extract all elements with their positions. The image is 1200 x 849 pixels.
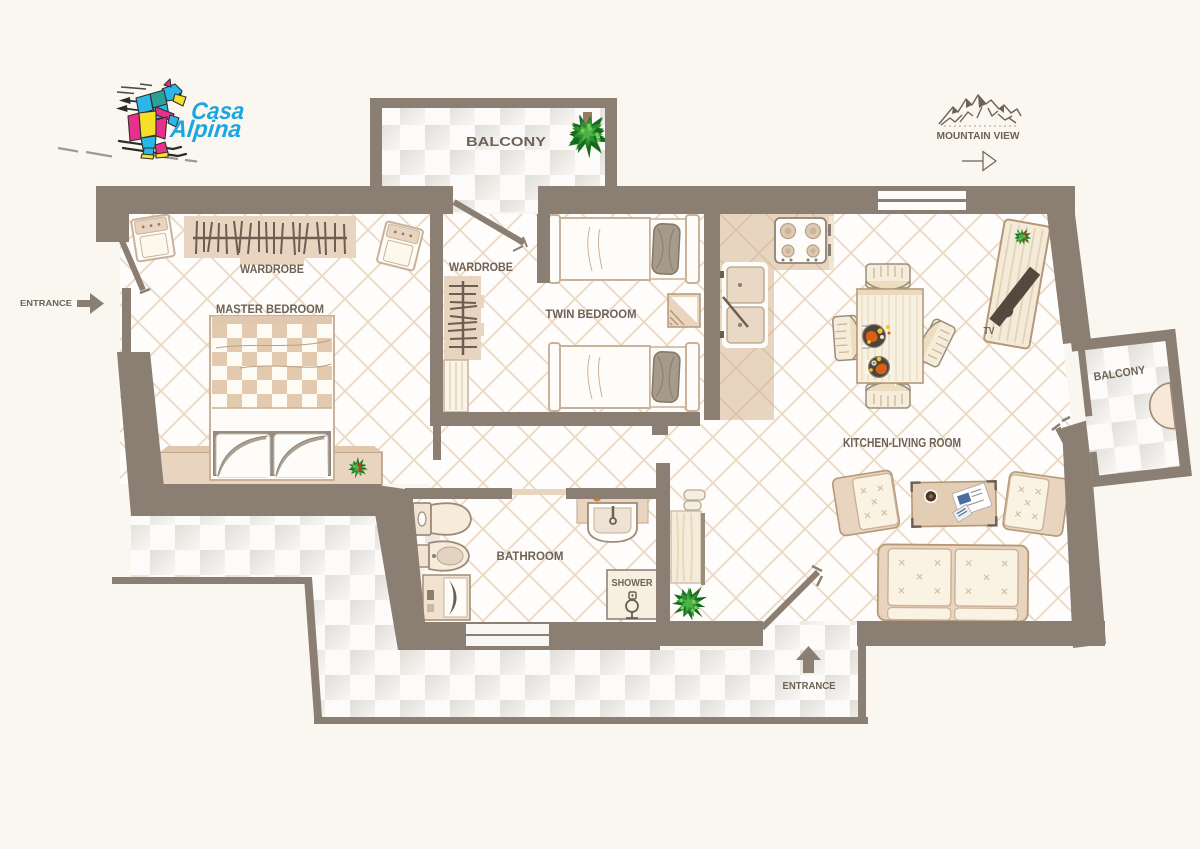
svg-text:ENTRANCE: ENTRANCE: [783, 681, 836, 692]
svg-text:TV: TV: [984, 326, 995, 337]
svg-text:SHOWER: SHOWER: [612, 577, 653, 589]
svg-text:MOUNTAIN VIEW: MOUNTAIN VIEW: [937, 130, 1020, 142]
svg-text:Alpina: Alpina: [168, 116, 243, 143]
svg-text:WARDROBE: WARDROBE: [240, 262, 304, 276]
svg-text:BALCONY: BALCONY: [466, 135, 547, 149]
svg-text:TWIN BEDROOM: TWIN BEDROOM: [546, 307, 637, 321]
svg-text:KITCHEN-LIVING ROOM: KITCHEN-LIVING ROOM: [843, 436, 961, 450]
svg-text:ENTRANCE: ENTRANCE: [20, 298, 72, 308]
svg-text:BATHROOM: BATHROOM: [497, 549, 564, 563]
svg-text:MASTER BEDROOM: MASTER BEDROOM: [216, 302, 324, 316]
svg-text:WARDROBE: WARDROBE: [449, 260, 513, 274]
